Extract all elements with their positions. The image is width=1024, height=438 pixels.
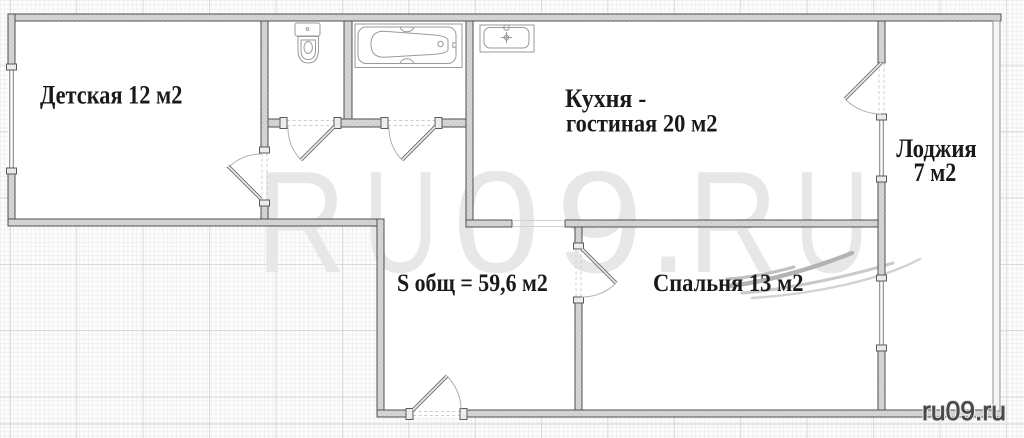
svg-text:гостиная 20 м2: гостиная 20 м2 <box>566 110 718 137</box>
svg-text:Спальня 13 м2: Спальня 13 м2 <box>653 270 804 297</box>
svg-text:ru09.ru: ru09.ru <box>922 396 1006 426</box>
svg-text:Детская 12 м2: Детская 12 м2 <box>40 81 182 110</box>
svg-text:Кухня -: Кухня - <box>565 85 646 113</box>
svg-text:7 м2: 7 м2 <box>914 159 957 187</box>
svg-text:S общ = 59,6 м2: S общ = 59,6 м2 <box>397 270 548 298</box>
